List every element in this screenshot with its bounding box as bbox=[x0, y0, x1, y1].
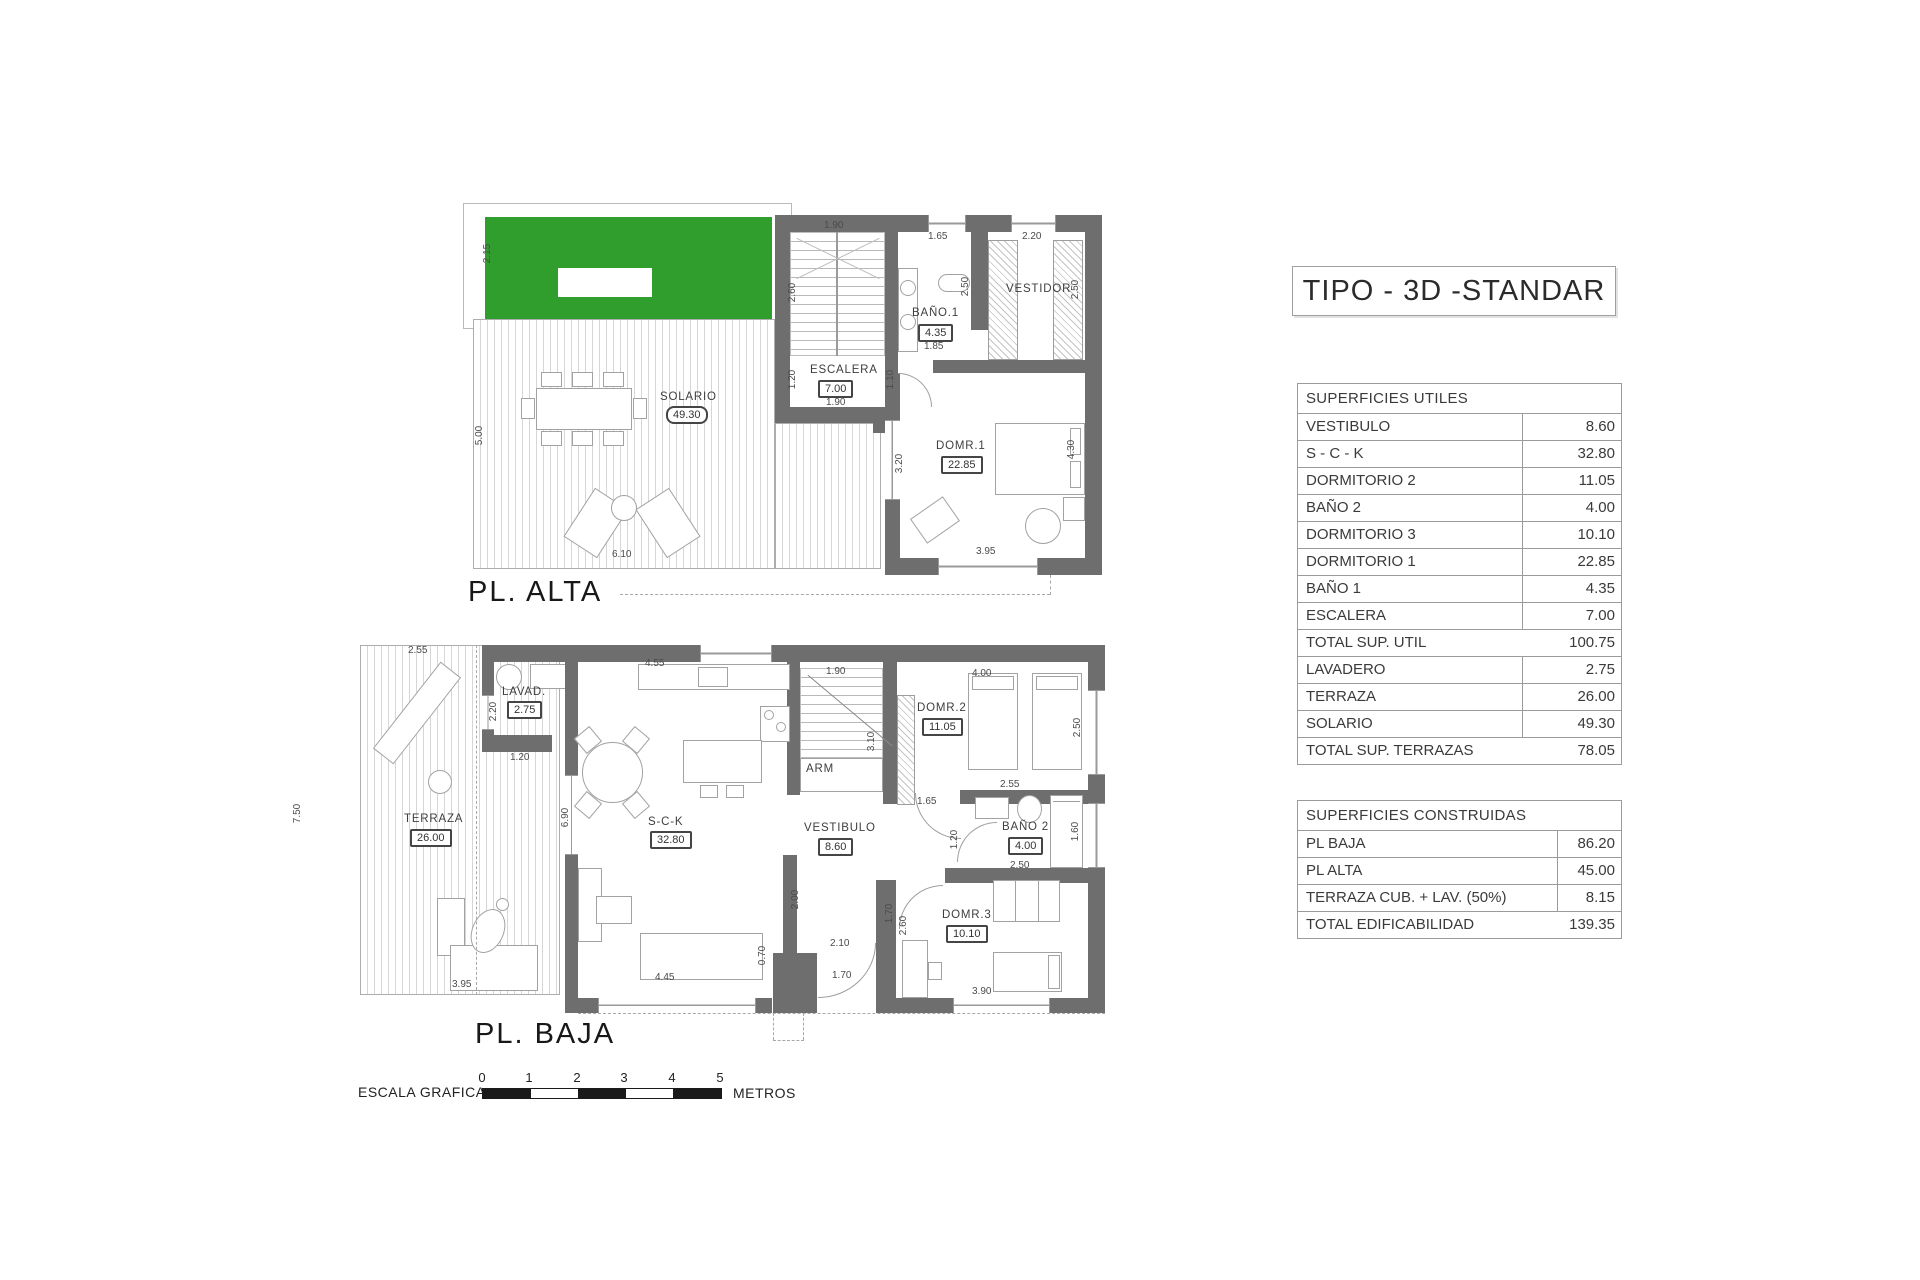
table-row: ESCALERA7.00 bbox=[1298, 603, 1621, 630]
dashed-boundary bbox=[620, 594, 1050, 595]
dim-label: 1.90 bbox=[826, 666, 845, 677]
chair bbox=[428, 770, 452, 794]
dim-label: 4.45 bbox=[655, 972, 674, 983]
table-row: TERRAZA26.00 bbox=[1298, 684, 1621, 711]
window bbox=[1088, 690, 1105, 775]
dashed-porch bbox=[803, 1013, 804, 1040]
dim-label: 0.70 bbox=[757, 946, 768, 965]
table-row: TERRAZA CUB. + LAV. (50%)8.15 bbox=[1298, 885, 1621, 912]
table-row: PL BAJA86.20 bbox=[1298, 831, 1621, 858]
wardrobe-divider bbox=[1015, 880, 1016, 922]
table-row: S - C - K32.80 bbox=[1298, 441, 1621, 468]
wall bbox=[482, 735, 552, 752]
area-terraza: 26.00 bbox=[410, 829, 452, 847]
table-row: DORMITORIO 310.10 bbox=[1298, 522, 1621, 549]
table-row: PL ALTA45.00 bbox=[1298, 858, 1621, 885]
area-solario: 49.30 bbox=[666, 406, 708, 424]
wall bbox=[971, 232, 988, 330]
chair bbox=[572, 431, 593, 446]
table-row-total: TOTAL SUP. TERRAZAS78.05 bbox=[1298, 738, 1621, 764]
solarium-deck-ext bbox=[775, 423, 881, 569]
dim-label: 1.20 bbox=[949, 830, 960, 849]
wall bbox=[775, 407, 885, 423]
chair bbox=[633, 398, 647, 419]
scale-segment bbox=[578, 1089, 626, 1098]
title-box: TIPO - 3D -STANDAR bbox=[1292, 266, 1616, 316]
chair bbox=[928, 962, 942, 980]
dim-label: 2.20 bbox=[1022, 231, 1041, 242]
dim-label: 3.90 bbox=[972, 986, 991, 997]
wall bbox=[933, 360, 1085, 373]
dim-label: 6.90 bbox=[560, 808, 571, 827]
desk bbox=[902, 940, 928, 998]
scale-label: ESCALA GRAFICA : bbox=[358, 1084, 494, 1100]
scale-tick: 3 bbox=[614, 1070, 634, 1085]
dim-label: 3.10 bbox=[866, 732, 877, 751]
window bbox=[598, 998, 756, 1013]
dim-label: 2.10 bbox=[830, 938, 849, 949]
scale-unit: METROS bbox=[733, 1085, 796, 1101]
wardrobe-unit bbox=[993, 880, 1060, 922]
table-header: SUPERFICIES CONSTRUIDAS bbox=[1298, 801, 1621, 831]
stool bbox=[726, 785, 744, 798]
dining-table bbox=[536, 388, 632, 430]
room-label-dorm2: DOMR.2 bbox=[917, 702, 967, 714]
scale-tick: 2 bbox=[567, 1070, 587, 1085]
area-vestibulo: 8.60 bbox=[818, 838, 853, 856]
dim-label: 3.95 bbox=[976, 546, 995, 557]
scale-segment bbox=[673, 1089, 721, 1098]
dashed-boundary bbox=[476, 645, 477, 995]
table-row: SOLARIO49.30 bbox=[1298, 711, 1621, 738]
chair bbox=[541, 372, 562, 387]
dim-label: 5.00 bbox=[474, 426, 485, 445]
window bbox=[938, 558, 1038, 575]
dim-label: 2.50 bbox=[1070, 280, 1081, 299]
room-label-vestidor: VESTIDOR bbox=[1006, 283, 1071, 295]
nightstand bbox=[1063, 497, 1085, 521]
dim-label: 2.50 bbox=[1072, 718, 1083, 737]
room-label-arm: ARM bbox=[806, 763, 834, 775]
dim-label: 2.20 bbox=[488, 702, 499, 721]
scale-segment bbox=[531, 1089, 579, 1098]
roof-skylight bbox=[558, 268, 652, 297]
room-label-lavad: LAVAD. bbox=[502, 686, 546, 698]
room-label-terraza: TERRAZA bbox=[404, 813, 463, 825]
room-label-escalera: ESCALERA bbox=[810, 364, 878, 376]
wall bbox=[883, 662, 897, 795]
chair bbox=[603, 431, 624, 446]
scale-tick: 4 bbox=[662, 1070, 682, 1085]
room-label-sck: S-C-K bbox=[648, 816, 683, 828]
scale-bar bbox=[482, 1088, 722, 1099]
area-sck: 32.80 bbox=[650, 831, 692, 849]
burner bbox=[764, 710, 774, 720]
superficies-utiles-table: SUPERFICIES UTILES VESTIBULO8.60 S - C -… bbox=[1297, 383, 1622, 765]
room-label-dorm1: DOMR.1 bbox=[936, 440, 986, 452]
dim-label: 1.70 bbox=[884, 904, 895, 923]
table-row: LAVADERO2.75 bbox=[1298, 657, 1621, 684]
dashed-porch bbox=[773, 1013, 774, 1040]
dim-label: 1.20 bbox=[787, 370, 798, 389]
dim-label: 4.30 bbox=[1066, 440, 1077, 459]
dim-label: 4.55 bbox=[645, 658, 664, 669]
kitchen-sink bbox=[698, 667, 728, 687]
dim-label: 2.60 bbox=[787, 283, 798, 302]
chair bbox=[603, 372, 624, 387]
dim-label: 1.10 bbox=[885, 370, 896, 389]
pillow bbox=[1048, 955, 1060, 989]
table-row: VESTIBULO8.60 bbox=[1298, 414, 1621, 441]
armchair bbox=[910, 496, 960, 544]
dim-label: 2.15 bbox=[482, 244, 493, 263]
room-label-dorm3: DOMR.3 bbox=[942, 909, 992, 921]
plant bbox=[1025, 508, 1061, 544]
wardrobe bbox=[988, 240, 1018, 360]
dashed-porch bbox=[773, 1040, 804, 1041]
table-row: DORMITORIO 122.85 bbox=[1298, 549, 1621, 576]
chair bbox=[541, 431, 562, 446]
dim-label: 1.60 bbox=[1070, 822, 1081, 841]
dim-label: 6.10 bbox=[612, 549, 631, 560]
solarium-deck bbox=[473, 319, 775, 569]
scale-segment bbox=[483, 1089, 531, 1098]
wall bbox=[775, 232, 790, 423]
area-bano1: 4.35 bbox=[918, 324, 953, 342]
dim-label: 1.65 bbox=[917, 796, 936, 807]
dim-label: 1.65 bbox=[928, 231, 947, 242]
dim-label: 2.50 bbox=[1010, 860, 1029, 871]
scale-tick: 5 bbox=[710, 1070, 730, 1085]
superficies-construidas-table: SUPERFICIES CONSTRUIDAS PL BAJA86.20 PL … bbox=[1297, 800, 1622, 939]
door-arc bbox=[898, 373, 932, 407]
room-label-bano2: BAÑO 2 bbox=[1002, 821, 1049, 833]
table-header: SUPERFICIES UTILES bbox=[1298, 384, 1621, 414]
dim-label: 4.00 bbox=[972, 668, 991, 679]
wardrobe bbox=[1053, 240, 1083, 360]
caption-pl-baja: PL. BAJA bbox=[475, 1018, 615, 1051]
wall bbox=[482, 645, 575, 662]
window bbox=[1088, 803, 1105, 868]
wall bbox=[896, 998, 953, 1013]
window bbox=[1011, 215, 1056, 232]
area-dorm3: 10.10 bbox=[946, 925, 988, 943]
table-row: BAÑO 24.00 bbox=[1298, 495, 1621, 522]
dim-label: 2.55 bbox=[408, 645, 427, 656]
room-label-bano1: BAÑO.1 bbox=[912, 307, 959, 319]
area-escalera: 7.00 bbox=[818, 380, 853, 398]
floor-plan-sheet: SOLARIO 49.30 ESCALERA 7.00 BAÑO.1 4.35 … bbox=[0, 0, 1920, 1280]
area-dorm2: 11.05 bbox=[922, 718, 963, 736]
dim-label: 1.70 bbox=[832, 970, 851, 981]
pillow bbox=[1070, 461, 1081, 488]
dim-label: 1.90 bbox=[826, 397, 845, 408]
dim-label: 1.85 bbox=[924, 341, 943, 352]
table-row: DORMITORIO 211.05 bbox=[1298, 468, 1621, 495]
pillow bbox=[1036, 676, 1078, 690]
kitchen-island bbox=[683, 740, 762, 783]
wardrobe-divider bbox=[1038, 880, 1039, 922]
wall bbox=[885, 232, 898, 360]
side-table bbox=[611, 495, 637, 521]
shower-line bbox=[1053, 801, 1080, 802]
room-label-vestibulo: VESTIBULO bbox=[804, 822, 876, 834]
table-row-total: TOTAL SUP. UTIL100.75 bbox=[1298, 630, 1621, 657]
wardrobe bbox=[897, 695, 915, 805]
door-arc bbox=[957, 822, 997, 862]
dim-label: 7.50 bbox=[292, 804, 303, 823]
area-dorm1: 22.85 bbox=[941, 456, 983, 474]
dim-label: 3.95 bbox=[452, 979, 471, 990]
dim-label: 2.00 bbox=[790, 890, 801, 909]
stool bbox=[700, 785, 718, 798]
chair bbox=[572, 372, 593, 387]
sink bbox=[900, 280, 916, 296]
wall bbox=[876, 880, 896, 1013]
dim-label: 3.20 bbox=[894, 454, 905, 473]
dim-label: 2.60 bbox=[898, 916, 909, 935]
dim-label: 1.20 bbox=[510, 752, 529, 763]
scale-segment bbox=[626, 1089, 674, 1098]
burner bbox=[776, 722, 786, 732]
table-row-total: TOTAL EDIFICABILIDAD139.35 bbox=[1298, 912, 1621, 938]
bath-sink bbox=[975, 797, 1009, 819]
wall bbox=[1085, 232, 1102, 575]
area-lavad: 2.75 bbox=[507, 701, 542, 719]
table-row: BAÑO 14.35 bbox=[1298, 576, 1621, 603]
toilet bbox=[1017, 795, 1042, 823]
chair bbox=[521, 398, 535, 419]
dim-label: 1.90 bbox=[824, 220, 843, 231]
window bbox=[953, 998, 1050, 1013]
scale-tick: 1 bbox=[519, 1070, 539, 1085]
scale-tick: 0 bbox=[472, 1070, 492, 1085]
wall-pillar bbox=[773, 953, 817, 1013]
dim-label: 2.50 bbox=[960, 277, 971, 296]
dashed-boundary bbox=[1050, 575, 1051, 595]
window bbox=[700, 645, 772, 662]
room-label-solario: SOLARIO bbox=[660, 391, 717, 403]
coffee-table bbox=[596, 896, 632, 924]
person-head bbox=[496, 898, 509, 911]
dashed-boundary bbox=[578, 1013, 1105, 1014]
area-bano2: 4.00 bbox=[1008, 837, 1043, 855]
caption-pl-alta: PL. ALTA bbox=[468, 576, 602, 609]
dim-label: 2.55 bbox=[1000, 779, 1019, 790]
window bbox=[928, 215, 966, 232]
stair-rail bbox=[836, 232, 838, 356]
